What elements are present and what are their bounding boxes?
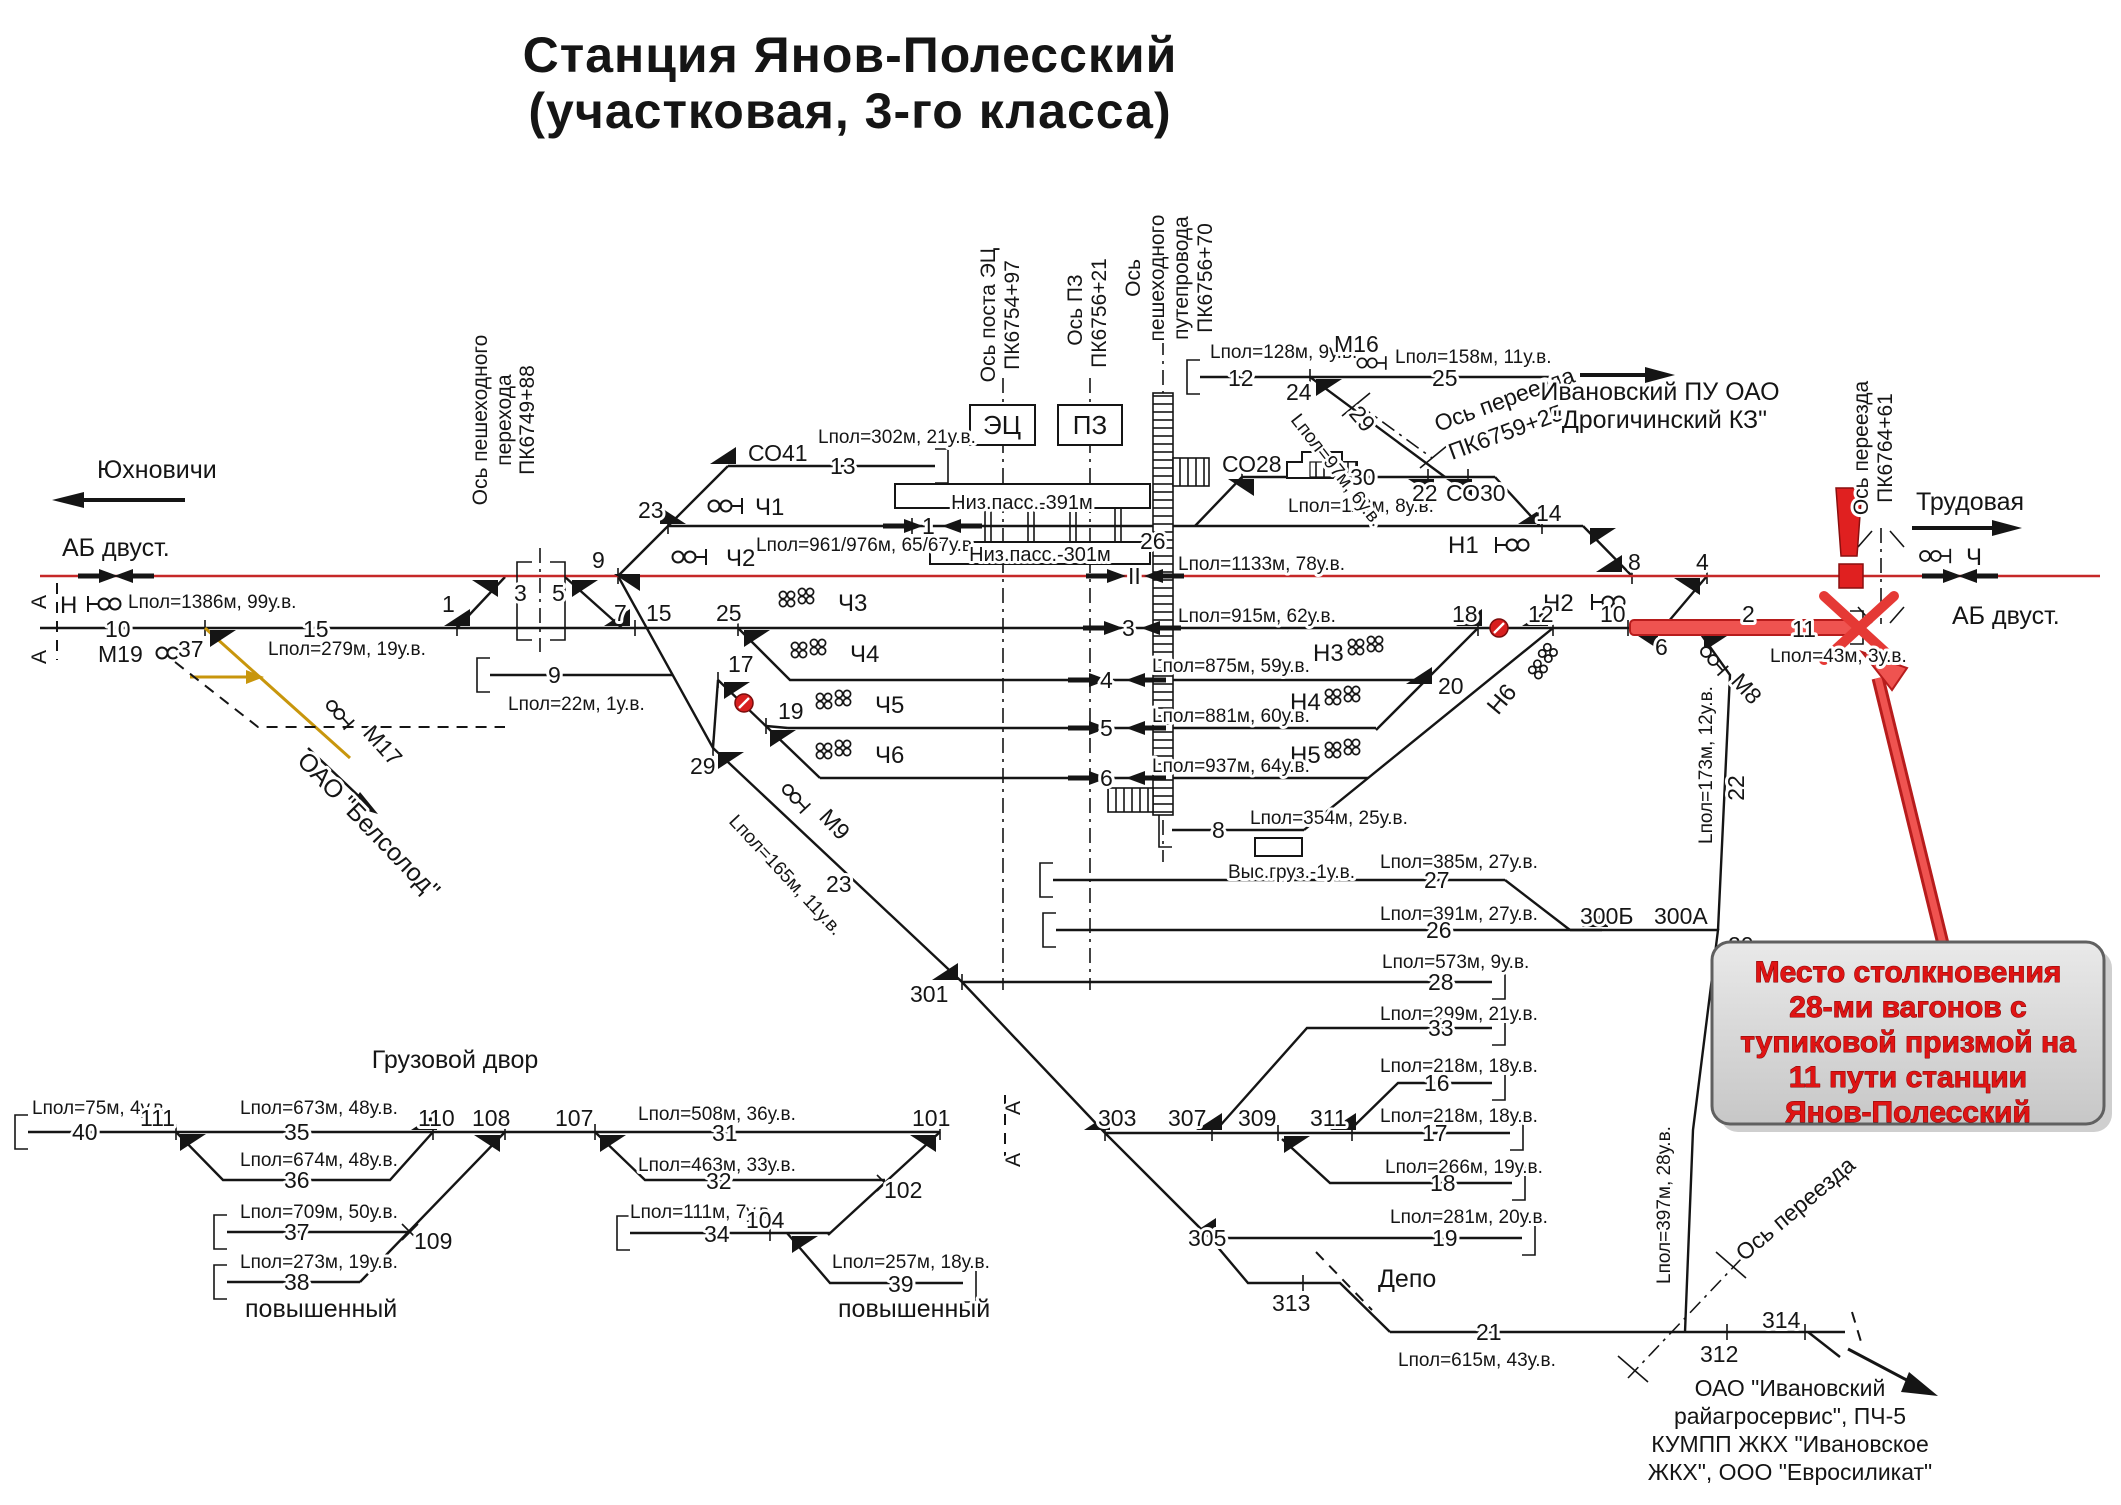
label-L-ch3: Ч3	[838, 590, 867, 617]
label-L-comp1: ОАО "Ивановский	[1695, 1375, 1886, 1401]
label-callout-l2: 28-ми вагонов с	[1789, 991, 2026, 1024]
label-L-n27: 27	[1424, 867, 1450, 893]
label-L-n21: 21	[1476, 1319, 1502, 1345]
label-L-n4tr: 4	[1100, 667, 1113, 693]
label-L-n6sw: 6	[1655, 634, 1668, 660]
station-diagram: Станция Янов-Полесский (участковая, 3-го…	[0, 0, 2121, 1500]
label-L-n104: 104	[746, 1207, 785, 1233]
label-L-niz301: Низ.пасс.-301м	[969, 544, 1111, 566]
label-L-n28: 28	[1428, 969, 1454, 995]
label-L-osped4: ПК6756+70	[1194, 223, 1217, 333]
label-L-n2sw: 2	[1742, 601, 1755, 627]
label-L-n101: 101	[912, 1105, 950, 1131]
label-L-ospz1: Ось ПЗ	[1064, 274, 1087, 345]
label-L-lp674: Lпол=674м, 48у.в.	[240, 1150, 398, 1171]
label-L-n24: 24	[1286, 379, 1312, 405]
label-L-n20sw: 20	[1438, 673, 1464, 699]
label-L-vys: Выс.груз.-1у.в.	[1228, 862, 1355, 883]
label-L-ch2: Ч2	[726, 545, 755, 572]
label-L-n311: 311	[1310, 1105, 1347, 1131]
label-L-n36: 36	[284, 1167, 310, 1193]
label-L-ch5: Ч5	[875, 692, 904, 719]
page-title: Станция Янов-Полесский	[523, 27, 1178, 83]
label-L-n8tr: 8	[1212, 817, 1225, 843]
label-L-m16: М16	[1334, 331, 1379, 357]
label-L-n108: 108	[472, 1105, 510, 1131]
label-L-chR: Ч	[1966, 544, 1982, 571]
label-L-lp266: Lпол=266м, 19у.в.	[1385, 1157, 1543, 1178]
label-L-n10sw: 10	[1600, 601, 1626, 627]
label-L-n303: 303	[1098, 1105, 1136, 1131]
label-L-n17b: 17	[1422, 1120, 1448, 1146]
label-L-n18sw: 18	[1452, 601, 1478, 627]
freight-platform	[1255, 838, 1302, 856]
label-L-n300b: 300Б	[1580, 903, 1633, 929]
label-L-n18b: 18	[1430, 1170, 1456, 1196]
label-L-n102: 102	[884, 1177, 922, 1203]
label-L-n5: 5	[552, 580, 565, 606]
label-L-co28: СО28	[1222, 451, 1282, 477]
label-L-lp1133: Lпол=1133м, 78у.в.	[1178, 554, 1345, 575]
label-L-n25tr: 25	[1432, 365, 1458, 391]
label-L-n39: 39	[888, 1271, 914, 1297]
label-L-n38: 38	[284, 1269, 310, 1295]
label-L-n19: 19	[778, 698, 804, 724]
label-L-lp915: Lпол=915м, 62у.в.	[1178, 606, 1336, 627]
label-L-m19: М19	[98, 641, 143, 667]
label-L-n22tr: 22	[1723, 775, 1749, 801]
label-L-lp158: Lпол=158м, 11у.в.	[1395, 347, 1551, 368]
label-L-n26: 26	[1140, 528, 1166, 554]
label-L-lp299: Lпол=299м, 21у.в.	[1380, 1004, 1538, 1025]
label-L-trud: Трудовая	[1916, 488, 2024, 516]
label-L-n23: 23	[638, 497, 664, 523]
label-L-n14: 14	[1536, 500, 1562, 526]
label-L-lp615: Lпол=615м, 43у.в.	[1398, 1350, 1556, 1371]
label-L-lp173: Lпол=173м, 12у.в.	[1696, 686, 1717, 844]
label-L-n1: 1	[442, 591, 455, 617]
label-L-osper3: Ось переезда	[1850, 381, 1873, 516]
label-L-n12sw: 12	[1528, 601, 1554, 627]
label-L-n13: 13	[830, 453, 856, 479]
label-L-n313: 313	[1272, 1290, 1310, 1316]
label-L-n37: 37	[178, 636, 204, 662]
label-L-osped1: Ось	[1122, 259, 1145, 297]
label-L-ch1: Ч1	[755, 494, 784, 521]
label-L-n23d: 23	[826, 871, 852, 897]
label-L-osec2: ПК6754+97	[1001, 260, 1024, 370]
label-L-h1: Н1	[1448, 532, 1479, 559]
label-L-aR2: А	[1002, 1153, 1025, 1167]
label-L-povR: повышенный	[838, 1295, 990, 1323]
label-L-lp881: Lпол=881м, 60у.в.	[1152, 706, 1310, 727]
label-L-comp2: райагросервис", ПЧ-5	[1674, 1403, 1906, 1429]
derailer-dot-left	[735, 694, 753, 712]
label-L-osper4: ПК6764+61	[1874, 393, 1897, 503]
label-L-lp218b: Lпол=218м, 18у.в.	[1380, 1106, 1538, 1127]
label-L-n5tr: 5	[1100, 715, 1113, 741]
label-L-co41: СО41	[748, 440, 808, 466]
background	[0, 0, 2121, 1500]
label-L-comp4: ЖКХ", ООО "Евросиликат"	[1648, 1459, 1932, 1485]
label-L-n33: 33	[1428, 1015, 1454, 1041]
label-L-n111: 111	[140, 1105, 175, 1131]
label-L-n4sw: 4	[1696, 549, 1709, 575]
label-L-n11: 11	[1792, 616, 1816, 642]
label-L-lp961: Lпол=961/976м, 65/67у.в.	[756, 535, 977, 556]
label-L-ivan2: "Дрогичинский КЗ"	[1553, 406, 1767, 434]
label-L-depo: Депо	[1378, 1265, 1436, 1293]
label-L-n6tr: 6	[1100, 765, 1113, 791]
label-L-lp397: Lпол=397м, 28у.в.	[1654, 1126, 1675, 1284]
label-L-ospe1: Ось пешеходного	[469, 335, 492, 506]
label-L-lp875: Lпол=875м, 59у.в.	[1152, 656, 1310, 677]
label-L-pz: ПЗ	[1073, 410, 1107, 440]
diagram-canvas: Станция Янов-Полесский (участковая, 3-го…	[0, 0, 2121, 1500]
label-L-n26b: 26	[1426, 917, 1452, 943]
label-L-n307: 307	[1168, 1105, 1206, 1131]
label-L-gruz: Грузовой двор	[372, 1046, 539, 1074]
label-callout-l4: 11 пути станции	[1789, 1061, 2027, 1094]
label-L-n314: 314	[1762, 1307, 1801, 1333]
label-L-lp709: Lпол=709м, 50у.в.	[240, 1202, 398, 1223]
label-L-n19b: 19	[1432, 1225, 1458, 1251]
label-L-nII: II	[1128, 563, 1141, 589]
label-L-lp385: Lпол=385м, 27у.в.	[1380, 852, 1538, 873]
label-L-n22sw: 22	[1412, 480, 1438, 506]
label-L-lp257: Lпол=257м, 18у.в.	[832, 1252, 990, 1273]
label-L-n25sw: 25	[716, 600, 742, 626]
label-L-ivan1: Ивановский ПУ ОАО	[1540, 378, 1779, 406]
label-L-lp302: Lпол=302м, 21у.в.	[818, 427, 976, 448]
label-L-osec1: Ось поста ЭЦ	[977, 247, 1000, 382]
page-subtitle: (участковая, 3-го класса)	[528, 83, 1171, 139]
label-L-n7: 7	[614, 600, 627, 626]
label-L-n16: 16	[1424, 1070, 1450, 1096]
label-L-n1tr: 1	[922, 513, 935, 539]
label-L-lp22: Lпол=22м, 1у.в.	[508, 694, 645, 715]
label-L-n8sw: 8	[1628, 549, 1641, 575]
label-L-povL: повышенный	[245, 1295, 397, 1323]
label-L-n109: 109	[414, 1228, 452, 1254]
label-L-lp43: Lпол=43м, 3у.в.	[1770, 646, 1907, 667]
label-L-n309: 309	[1238, 1105, 1276, 1131]
label-L-osped3: путепровода	[1170, 216, 1193, 340]
label-L-n110: 110	[418, 1105, 455, 1131]
label-L-ospe3: ПК6749+88	[516, 365, 539, 475]
label-L-lp391: Lпол=391м, 27у.в.	[1380, 904, 1538, 925]
label-L-h3: Н3	[1313, 640, 1344, 667]
pedestrian-bridge	[1153, 393, 1173, 815]
label-L-n17: 17	[728, 651, 754, 677]
label-L-ch6: Ч6	[875, 742, 904, 769]
incident-callout: Место столкновения 28-ми вагонов с тупик…	[1712, 942, 2112, 1132]
label-L-nSig: Н	[60, 592, 77, 619]
label-L-aL1: А	[28, 595, 51, 609]
label-callout-l3: тупиковой призмой на	[1740, 1026, 2076, 1059]
label-L-n12tr: 12	[1228, 365, 1254, 391]
label-L-yukh: Юхновичи	[97, 456, 217, 484]
label-L-n312: 312	[1700, 1341, 1738, 1367]
label-L-lp279: Lпол=279м, 19у.в.	[268, 639, 426, 660]
label-L-n32: 32	[706, 1168, 732, 1194]
label-L-abR: АБ двуст.	[1952, 602, 2060, 630]
label-L-lp281: Lпол=281м, 20у.в.	[1390, 1207, 1548, 1228]
label-L-n31: 31	[712, 1120, 738, 1146]
label-L-n300a: 300А	[1654, 903, 1708, 929]
label-L-n9tr: 9	[548, 662, 561, 688]
label-L-co30: СО30	[1446, 480, 1506, 506]
derailer-dot-right	[1490, 619, 1508, 637]
label-L-lp1386: Lпол=1386м, 99у.в.	[128, 592, 296, 613]
label-L-lp218a: Lпол=218м, 18у.в.	[1380, 1056, 1538, 1077]
label-L-abL: АБ двуст.	[62, 534, 170, 562]
label-L-n40: 40	[72, 1119, 98, 1145]
label-L-ch4: Ч4	[850, 641, 879, 668]
label-L-n9: 9	[592, 547, 605, 573]
label-L-n301: 301	[910, 981, 948, 1007]
label-L-aR1: А	[1002, 1101, 1025, 1115]
label-L-lp354: Lпол=354м, 25у.в.	[1250, 808, 1408, 829]
label-L-lp273: Lпол=273м, 19у.в.	[240, 1252, 398, 1273]
label-L-comp3: КУМПП ЖКХ "Ивановское	[1651, 1431, 1929, 1457]
label-callout-l1: Место столкновения	[1755, 956, 2062, 989]
label-L-lp673: Lпол=673м, 48у.в.	[240, 1098, 398, 1119]
label-L-ospe2: перехода	[493, 374, 516, 466]
label-L-n34: 34	[704, 1221, 730, 1247]
label-L-n35: 35	[284, 1119, 310, 1145]
label-L-osped2: пешеходного	[1146, 214, 1169, 341]
label-L-ec: ЭЦ	[983, 410, 1021, 440]
label-L-n305: 305	[1188, 1225, 1226, 1251]
label-L-n107: 107	[555, 1105, 593, 1131]
label-callout-l5: Янов-Полесский	[1785, 1096, 2031, 1129]
label-L-n3: 3	[514, 580, 527, 606]
label-L-n37b: 37	[284, 1219, 310, 1245]
label-L-niz391: Низ.пасс.-391м	[951, 492, 1093, 514]
label-L-n10: 10	[105, 616, 131, 642]
label-L-ospz2: ПК6756+21	[1088, 258, 1111, 368]
label-L-n3tr: 3	[1122, 615, 1135, 641]
label-L-n15sw: 15	[646, 600, 672, 626]
label-L-aL2: А	[28, 650, 51, 664]
label-L-n29: 29	[690, 753, 716, 779]
label-L-lp573: Lпол=573м, 9у.в.	[1382, 952, 1529, 973]
label-L-lp937: Lпол=937м, 64у.в.	[1152, 756, 1310, 777]
